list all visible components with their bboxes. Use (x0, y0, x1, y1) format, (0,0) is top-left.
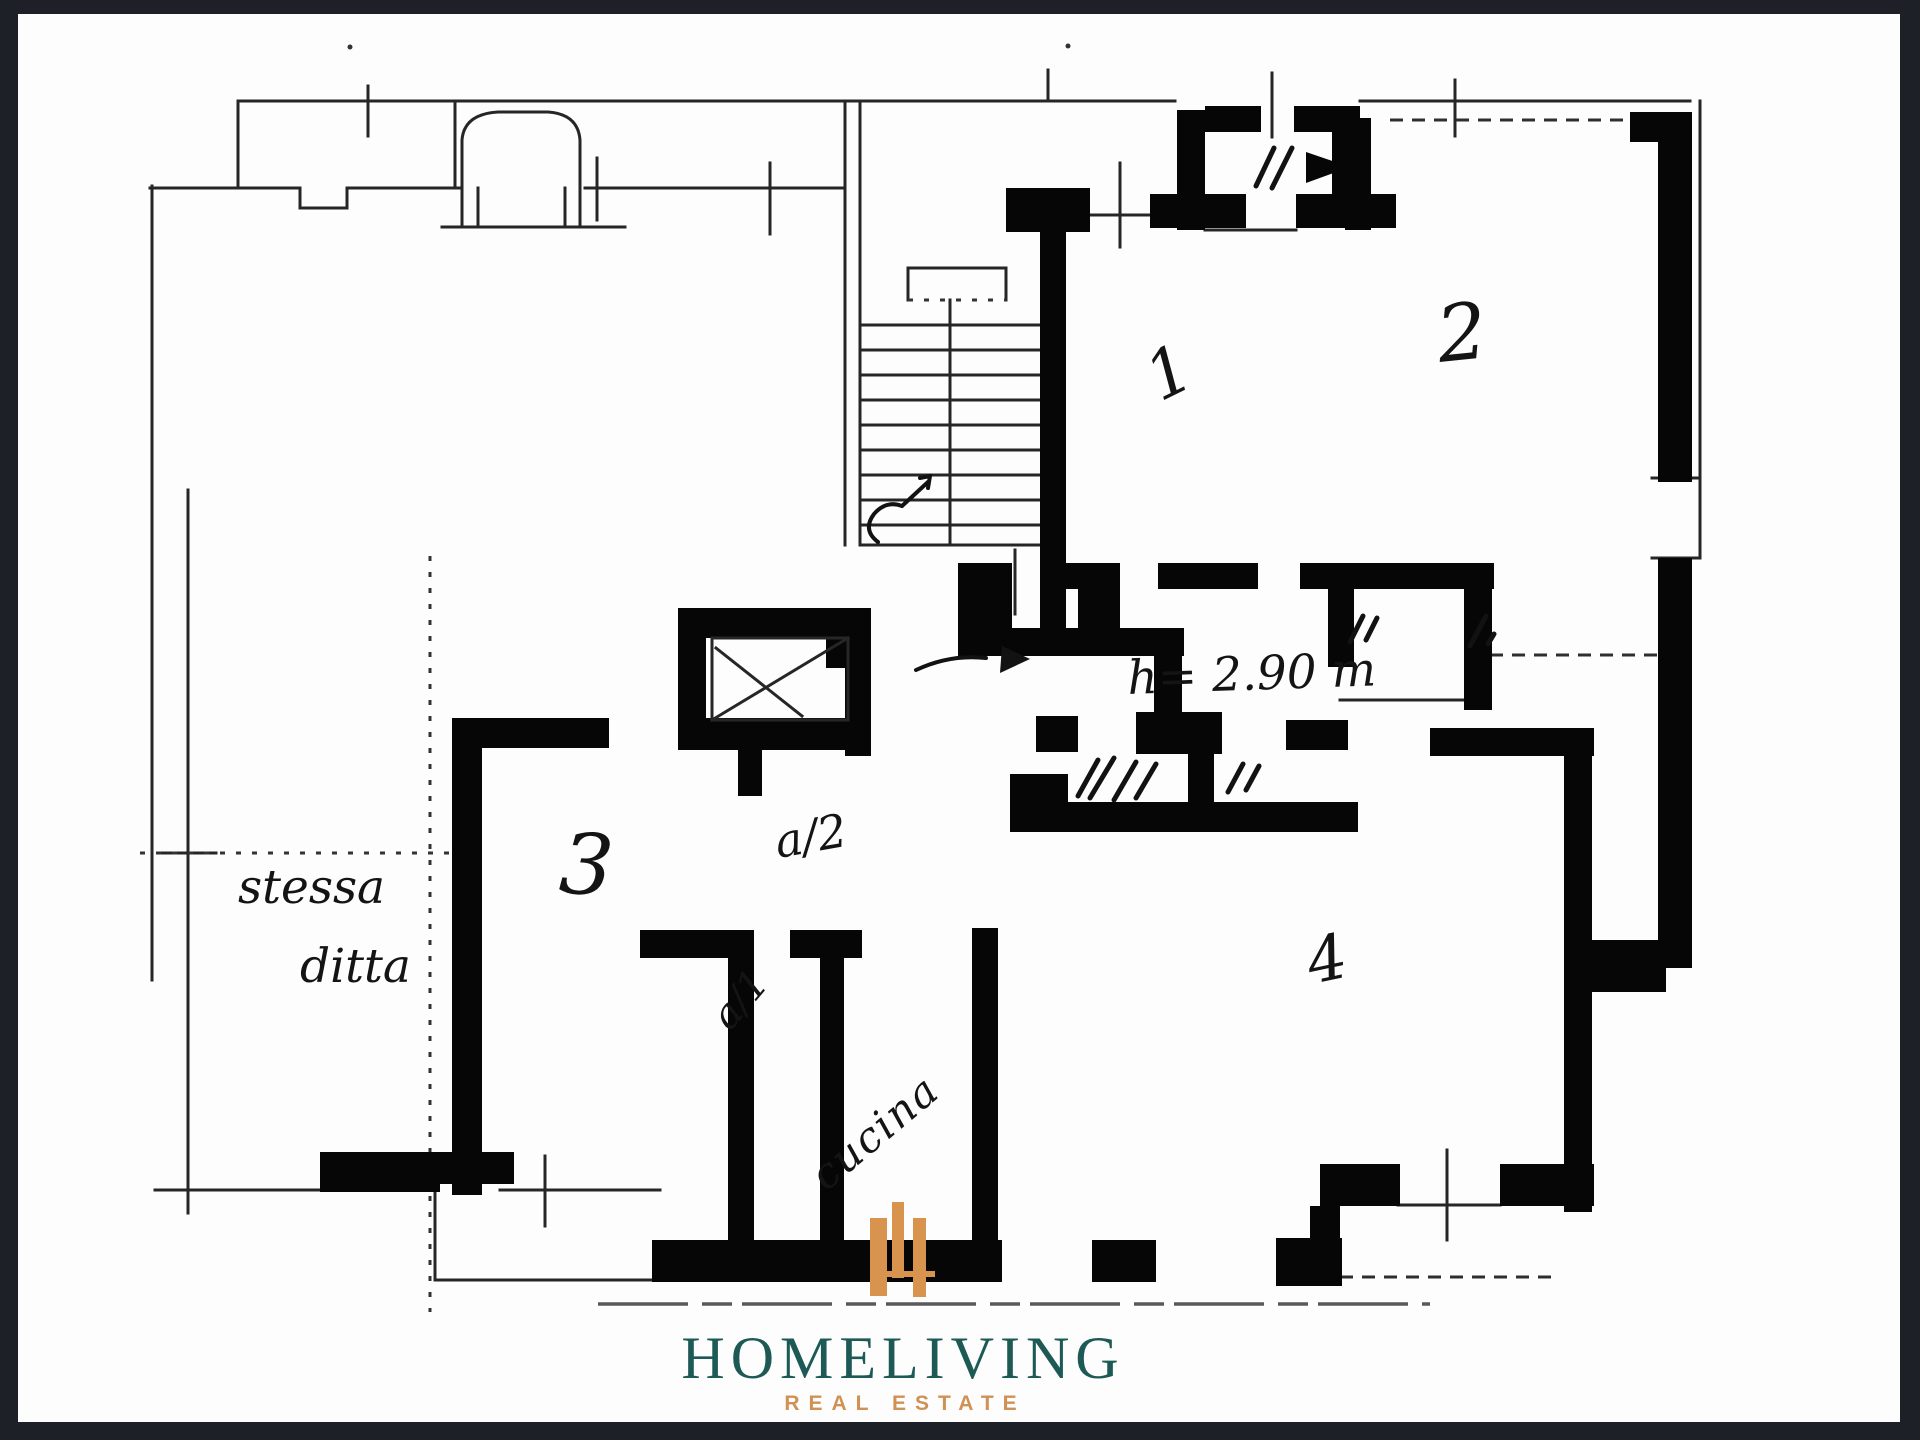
logo-brand-name: HOMELIVING (681, 1324, 1124, 1393)
room-label-2: 2 (1432, 286, 1492, 381)
note-stessa: stessa (238, 860, 385, 915)
logo-tagline: REAL ESTATE (784, 1392, 1025, 1416)
note-ditta: ditta (300, 939, 411, 994)
framed-floorplan-page: 1 2 3 4 h= 2.90 m stessa ditta a/2 a/1 c… (0, 0, 1920, 1440)
room-label-3: 3 (557, 814, 617, 915)
height-annotation: h= 2.90 m (1126, 642, 1377, 706)
floor-plan-drawing: 1 2 3 4 h= 2.90 m stessa ditta a/2 a/1 c… (0, 0, 1920, 1440)
paper (18, 14, 1900, 1422)
